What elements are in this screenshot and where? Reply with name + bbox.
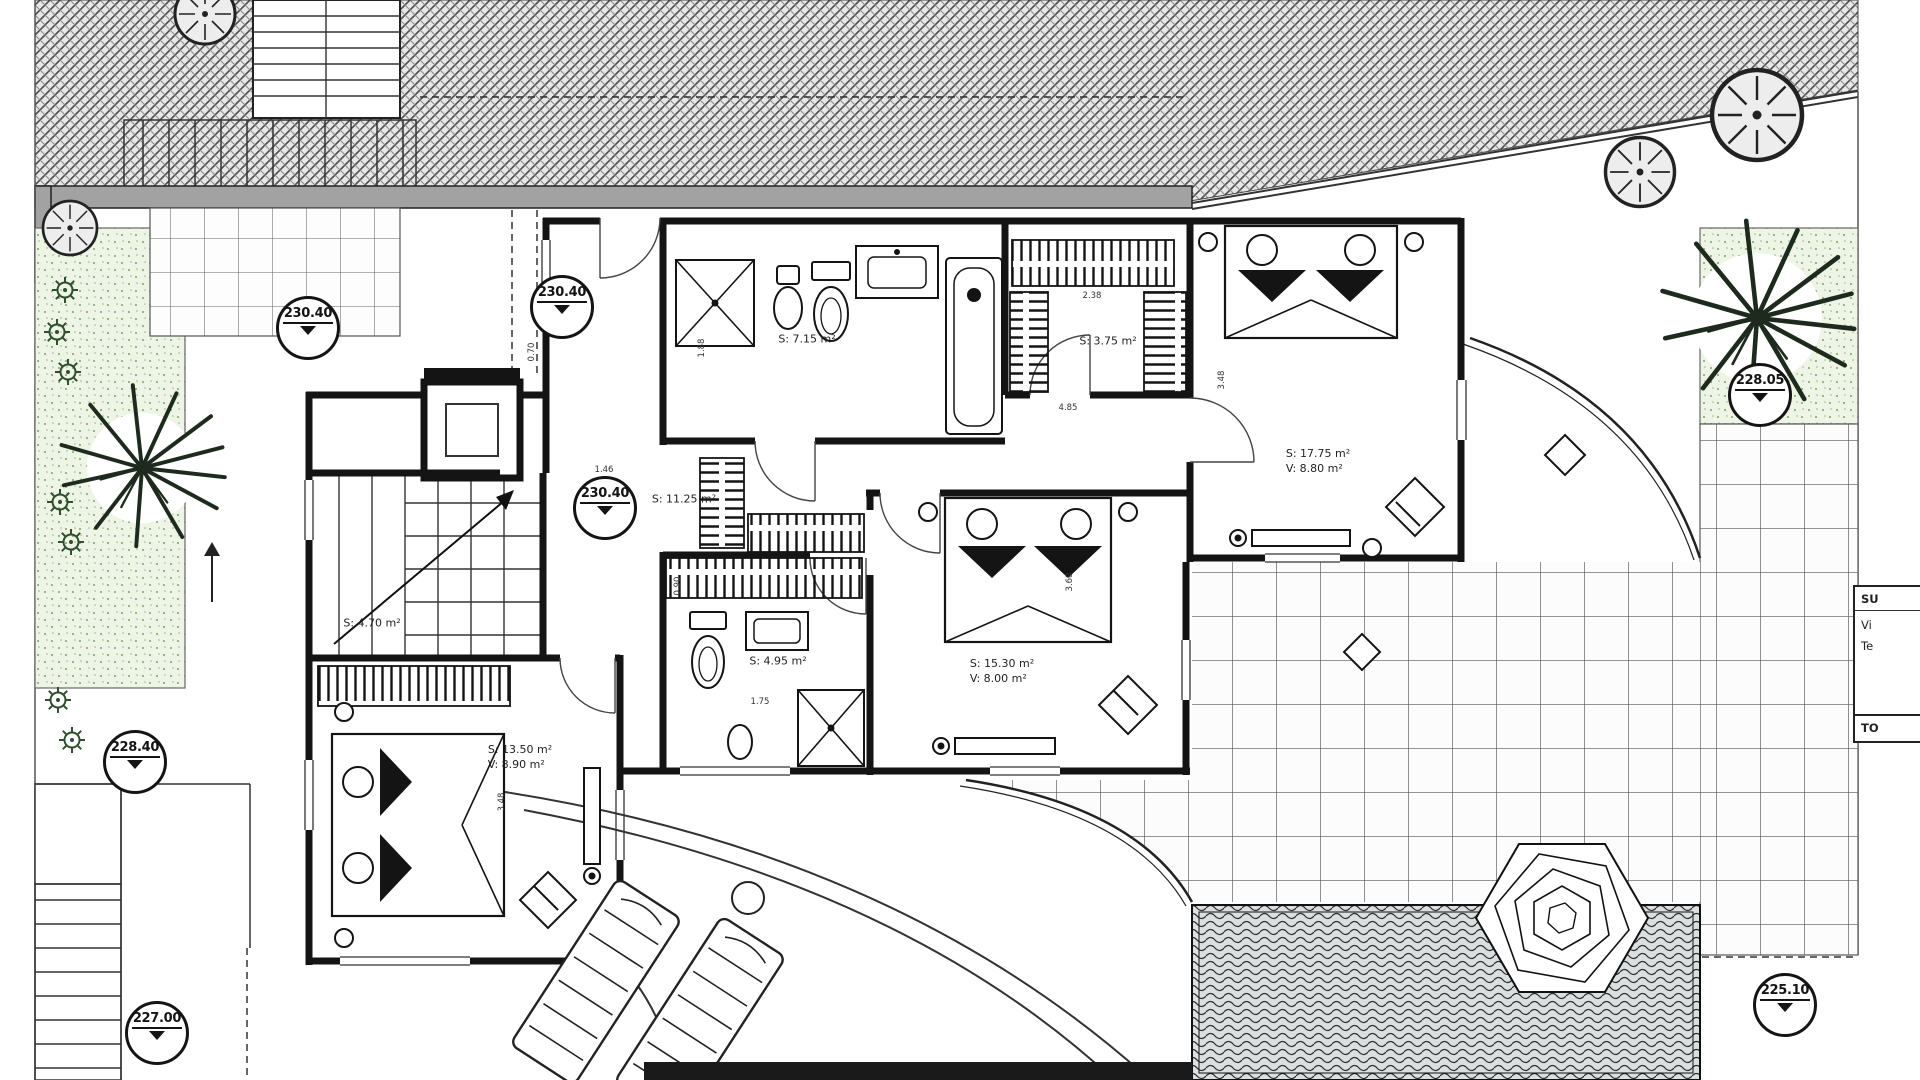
flower-icon <box>55 359 81 385</box>
master-bed <box>1199 226 1423 338</box>
dimension-label: 1.75 <box>751 697 770 707</box>
flower-icon <box>59 727 85 753</box>
elevation-value: 228.40 <box>110 741 160 758</box>
lower-bed <box>332 703 504 947</box>
room-area-label: S: 11.25 m² <box>652 493 716 508</box>
dimension-label: 3.48 <box>497 793 507 812</box>
elevation-value: 225.10 <box>1760 984 1810 1001</box>
shower-icon <box>798 690 864 766</box>
table-row: Vi <box>1855 611 1920 632</box>
table-header: SU <box>1855 587 1920 611</box>
flower-icon <box>52 277 78 303</box>
toilet-icon <box>690 612 726 688</box>
tree-icon <box>175 0 235 44</box>
room-area-label: S: 4.95 m² <box>749 655 806 670</box>
elevation-datum-icon <box>127 760 143 769</box>
elevation-marker: 225.10 <box>1753 973 1817 1037</box>
bottom-wall-band <box>644 1062 1192 1080</box>
room-surface-text: S: 15.30 m² <box>970 657 1034 672</box>
bathroom1-fixtures <box>676 246 1002 434</box>
room-surface-text: S: 11.25 m² <box>652 493 716 508</box>
toilet-icon <box>812 262 850 341</box>
area-summary-table: SUViTeTO <box>1853 585 1920 743</box>
bathtub-icon <box>946 258 1002 434</box>
elevation-marker: 227.00 <box>125 1001 189 1065</box>
flower-icon <box>47 489 73 515</box>
main-terrace-tiles <box>1192 562 1700 902</box>
elevation-datum-icon <box>300 326 316 335</box>
flower-icon <box>45 687 71 713</box>
bidet-icon <box>774 266 802 329</box>
tree-icon <box>1606 138 1675 207</box>
shower-icon <box>676 260 754 346</box>
middle-bed <box>919 498 1137 642</box>
elevation-marker: 230.40 <box>276 296 340 360</box>
room-surface-text: S: 7.15 m² <box>778 333 835 348</box>
retaining-wall <box>35 186 1192 208</box>
floor-plan-drawing <box>0 0 1920 1080</box>
floor-plan-canvas: 230.40230.40230.40228.40228.05227.00225.… <box>0 0 1920 1080</box>
elevation-datum-icon <box>597 506 613 515</box>
side-table-icon <box>1363 539 1381 557</box>
curved-terrace-wall-right <box>1470 338 1700 558</box>
elevation-value: 230.40 <box>537 286 587 303</box>
room-area-label: S: 4.70 m² <box>343 617 400 632</box>
room-surface-text: S: 4.70 m² <box>343 617 400 632</box>
dimension-label: 2.38 <box>1083 291 1102 301</box>
bathroom2-fixtures <box>690 612 864 766</box>
pool-side-table <box>732 882 764 914</box>
elevation-marker: 230.40 <box>530 275 594 339</box>
room-area-label: S: 3.75 m² <box>1079 335 1136 350</box>
north-direction-arrow <box>204 542 220 602</box>
room-area-label: S: 15.30 m²V: 8.00 m² <box>970 657 1034 687</box>
upper-stair-flight <box>253 0 400 118</box>
dimension-label: 3.68 <box>1065 573 1075 592</box>
elevation-datum-icon <box>149 1031 165 1040</box>
flower-icon <box>44 319 70 345</box>
elevator-shaft <box>424 368 520 478</box>
room-surface-text: S: 17.75 m² <box>1286 447 1350 462</box>
elevation-marker: 228.05 <box>1728 363 1792 427</box>
room-surface-text: S: 13.50 m² <box>488 743 552 758</box>
elevation-value: 227.00 <box>132 1012 182 1029</box>
elevation-marker: 228.40 <box>103 730 167 794</box>
vanity-sink-icon <box>856 246 938 298</box>
dimension-label: 1.46 <box>595 465 614 475</box>
dimension-label: 4.85 <box>1059 403 1078 413</box>
bidet-icon <box>728 725 752 759</box>
elevation-datum-icon <box>554 305 570 314</box>
elevation-value: 230.40 <box>580 487 630 504</box>
dimension-label: 3.48 <box>1217 371 1227 390</box>
table-total-row: TO <box>1855 714 1920 741</box>
room-surface-text: S: 3.75 m² <box>1079 335 1136 350</box>
table-row: Te <box>1855 632 1920 653</box>
dimension-label: 0.70 <box>527 343 537 362</box>
dimension-label: 1.88 <box>697 339 707 358</box>
terrace-corner-tiles <box>968 780 1192 902</box>
vanity-sink-icon <box>746 612 808 650</box>
room-surface-text: S: 4.95 m² <box>749 655 806 670</box>
right-terrace-tiles <box>1700 424 1858 955</box>
flower-icon <box>58 529 84 555</box>
top-terrace-tiles <box>150 208 400 336</box>
room-area-label: S: 13.50 m²V: 8.90 m² <box>488 743 552 773</box>
upper-walkway-steps <box>124 120 416 190</box>
elevation-datum-icon <box>1752 393 1768 402</box>
room-volume-text: V: 8.80 m² <box>1286 462 1350 477</box>
room-volume-text: V: 8.90 m² <box>488 758 552 773</box>
room-volume-text: V: 8.00 m² <box>970 672 1034 687</box>
elevation-value: 228.05 <box>1735 374 1785 391</box>
dimension-label: 0.90 <box>673 577 683 596</box>
elevation-datum-icon <box>1777 1003 1793 1012</box>
room-area-label: S: 17.75 m²V: 8.80 m² <box>1286 447 1350 477</box>
tree-icon <box>1712 70 1802 160</box>
elevation-value: 230.40 <box>283 307 333 324</box>
elevation-marker: 230.40 <box>573 476 637 540</box>
room-area-label: S: 7.15 m² <box>778 333 835 348</box>
tree-icon <box>43 201 97 255</box>
